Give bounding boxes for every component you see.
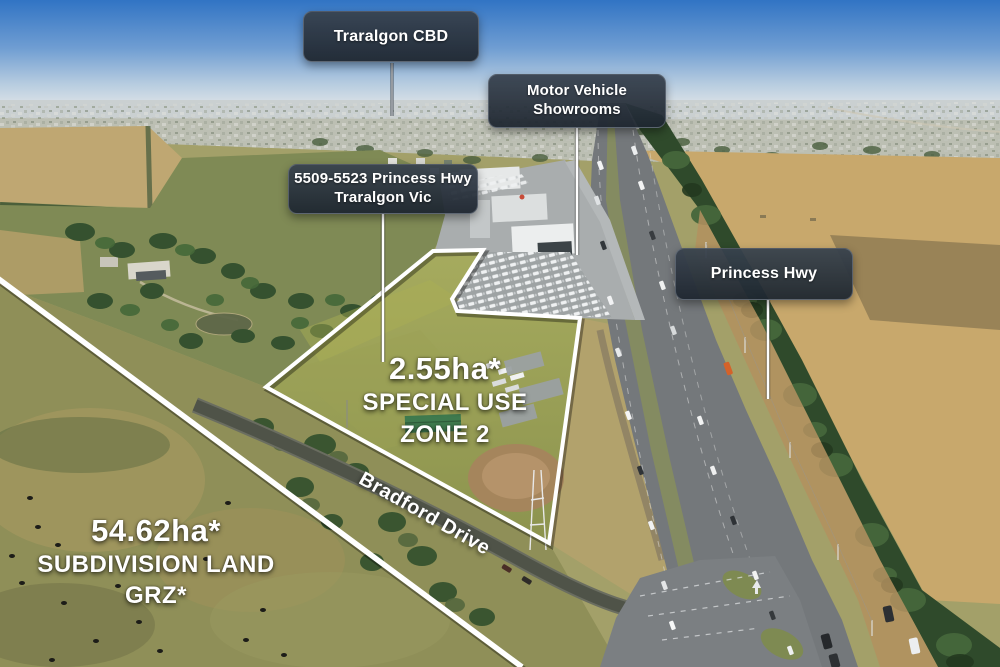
callout-address-line1: 5509-5523 Princess Hwy xyxy=(289,170,477,189)
callout-motor-vehicle-showrooms: Motor Vehicle Showrooms xyxy=(488,74,666,128)
parcel-zone-line2: ZONE 2 xyxy=(335,420,555,450)
callout-mvs-line1: Motor Vehicle xyxy=(489,82,665,101)
callout-princess-hwy: Princess Hwy xyxy=(675,248,853,300)
parcel-zone-line1: SPECIAL USE xyxy=(335,388,555,418)
aerial-property-image: Traralgon CBD Motor Vehicle Showrooms 55… xyxy=(0,0,1000,667)
subdivision-type-line: SUBDIVISION LAND xyxy=(16,550,296,579)
callout-property-address: 5509-5523 Princess Hwy Traralgon Vic xyxy=(288,164,478,214)
parcel-area-overlay: 2.55ha* SPECIAL USE ZONE 2 xyxy=(335,352,555,450)
subdivision-zone-line: GRZ* xyxy=(16,581,296,610)
callout-traralgon-cbd: Traralgon CBD xyxy=(303,11,479,62)
subdivision-area-value: 54.62ha* xyxy=(16,514,296,548)
subdivision-area-overlay: 54.62ha* SUBDIVISION LAND GRZ* xyxy=(16,514,296,610)
callout-princess-hwy-label: Princess Hwy xyxy=(676,264,852,284)
callout-mvs-line2: Showrooms xyxy=(489,101,665,120)
callout-traralgon-cbd-label: Traralgon CBD xyxy=(304,27,478,47)
parcel-area-value: 2.55ha* xyxy=(335,352,555,386)
callout-address-line2: Traralgon Vic xyxy=(289,189,477,208)
